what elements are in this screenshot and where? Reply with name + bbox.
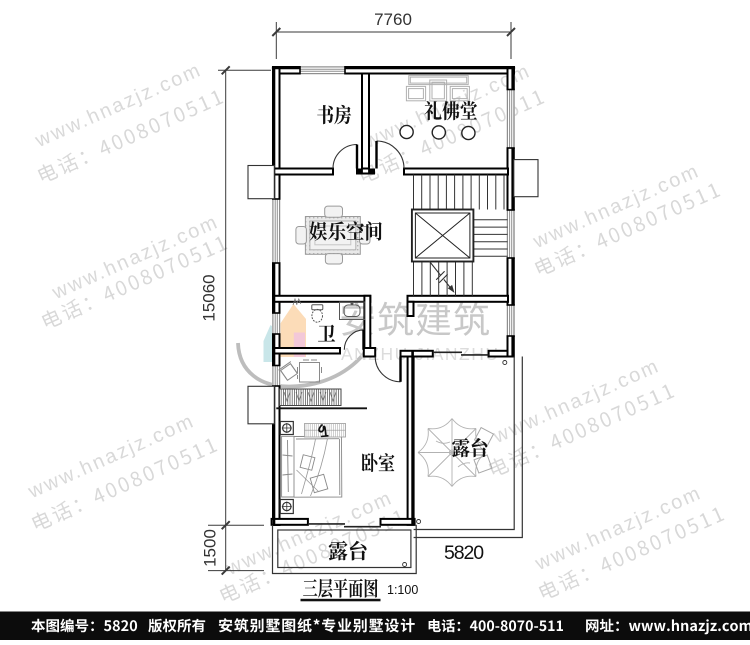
svg-text:15060: 15060 <box>200 274 219 321</box>
svg-text:7760: 7760 <box>374 10 412 29</box>
svg-text:1500: 1500 <box>201 529 220 567</box>
svg-text:5820: 5820 <box>444 542 484 564</box>
svg-text:1:100: 1:100 <box>387 583 418 597</box>
